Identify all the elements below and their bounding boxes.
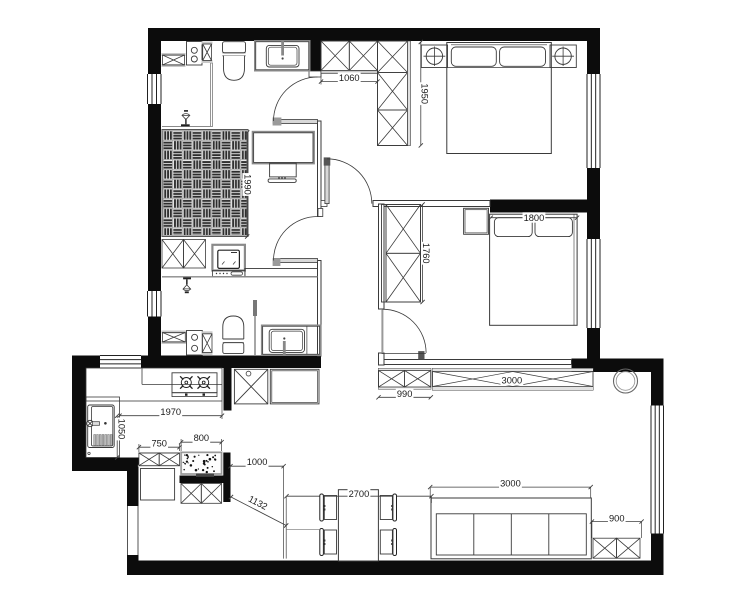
svg-text:2700: 2700 [349,489,370,499]
svg-text:990: 990 [397,389,413,399]
svg-text:1950: 1950 [419,83,429,104]
svg-text:3000: 3000 [500,478,521,488]
svg-text:3000: 3000 [502,376,523,386]
svg-text:1800: 1800 [524,213,545,223]
svg-text:1060: 1060 [339,73,360,83]
svg-text:750: 750 [151,439,167,449]
svg-text:1760: 1760 [421,243,431,264]
svg-text:1050: 1050 [116,419,126,440]
svg-text:1000: 1000 [247,457,268,467]
svg-text:900: 900 [609,513,625,523]
svg-text:1970: 1970 [160,407,181,417]
svg-text:1990: 1990 [242,174,252,195]
svg-text:800: 800 [194,433,210,443]
